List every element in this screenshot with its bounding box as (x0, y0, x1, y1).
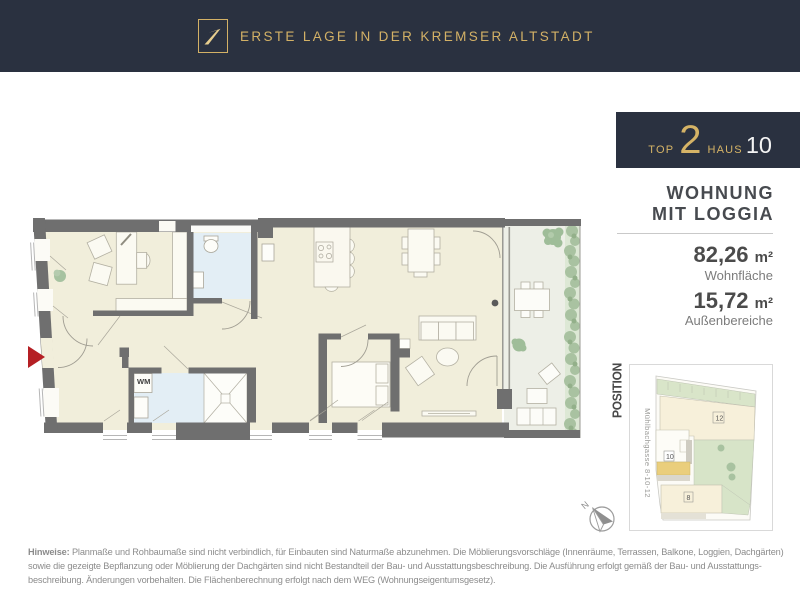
svg-text:12: 12 (716, 416, 724, 423)
svg-text:Mühlbachgasse 8-10-12: Mühlbachgasse 8-10-12 (643, 408, 652, 498)
svg-text:8: 8 (687, 495, 691, 502)
svg-text:N: N (580, 499, 591, 511)
svg-text:WM: WM (137, 377, 150, 386)
svg-text:10: 10 (666, 454, 674, 461)
